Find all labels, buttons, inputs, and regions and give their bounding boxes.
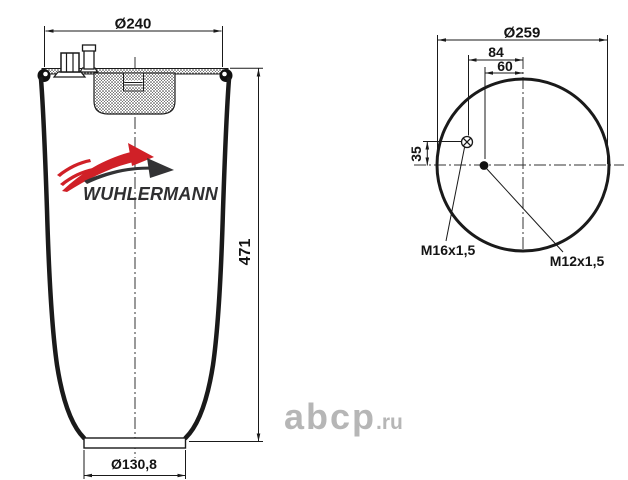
center-stud — [124, 73, 144, 91]
dim-bottom-diameter-label: Ø130,8 — [111, 457, 157, 471]
air-valve — [80, 45, 98, 72]
brand-logo-text: WUHLERMANN — [83, 185, 218, 203]
dim-60-label: 60 — [497, 59, 513, 73]
top-bolt — [54, 53, 85, 77]
watermark-suffix: .ru — [376, 412, 403, 433]
dim-fitting-offset — [469, 55, 524, 136]
product-technical-drawing: Ø240 471 Ø130,8 Ø259 84 60 35 M16x1,5 M1… — [0, 0, 628, 480]
dim-height-label: 471 — [238, 239, 254, 266]
m12-leader-line — [487, 169, 564, 253]
dim-35-label: 35 — [409, 146, 423, 162]
watermark: abcp .ru — [284, 399, 403, 435]
dim-outer-diameter-label: Ø259 — [504, 26, 541, 41]
bellows-left-edge — [41, 79, 84, 438]
bottom-plate — [84, 438, 186, 448]
air-spring-top-view — [414, 35, 624, 252]
dim-fitting-vertical-offset — [423, 142, 462, 166]
watermark-main: abcp — [284, 399, 376, 435]
bellows-right-edge — [186, 79, 230, 438]
thread-m12-label: M12x1,5 — [550, 254, 604, 268]
dim-84-label: 84 — [488, 45, 504, 59]
air-fitting-symbol — [462, 137, 473, 148]
dim-top-diameter-label: Ø240 — [115, 17, 152, 32]
thread-m16-label: M16x1,5 — [421, 243, 475, 257]
air-spring-side-view — [38, 26, 264, 479]
